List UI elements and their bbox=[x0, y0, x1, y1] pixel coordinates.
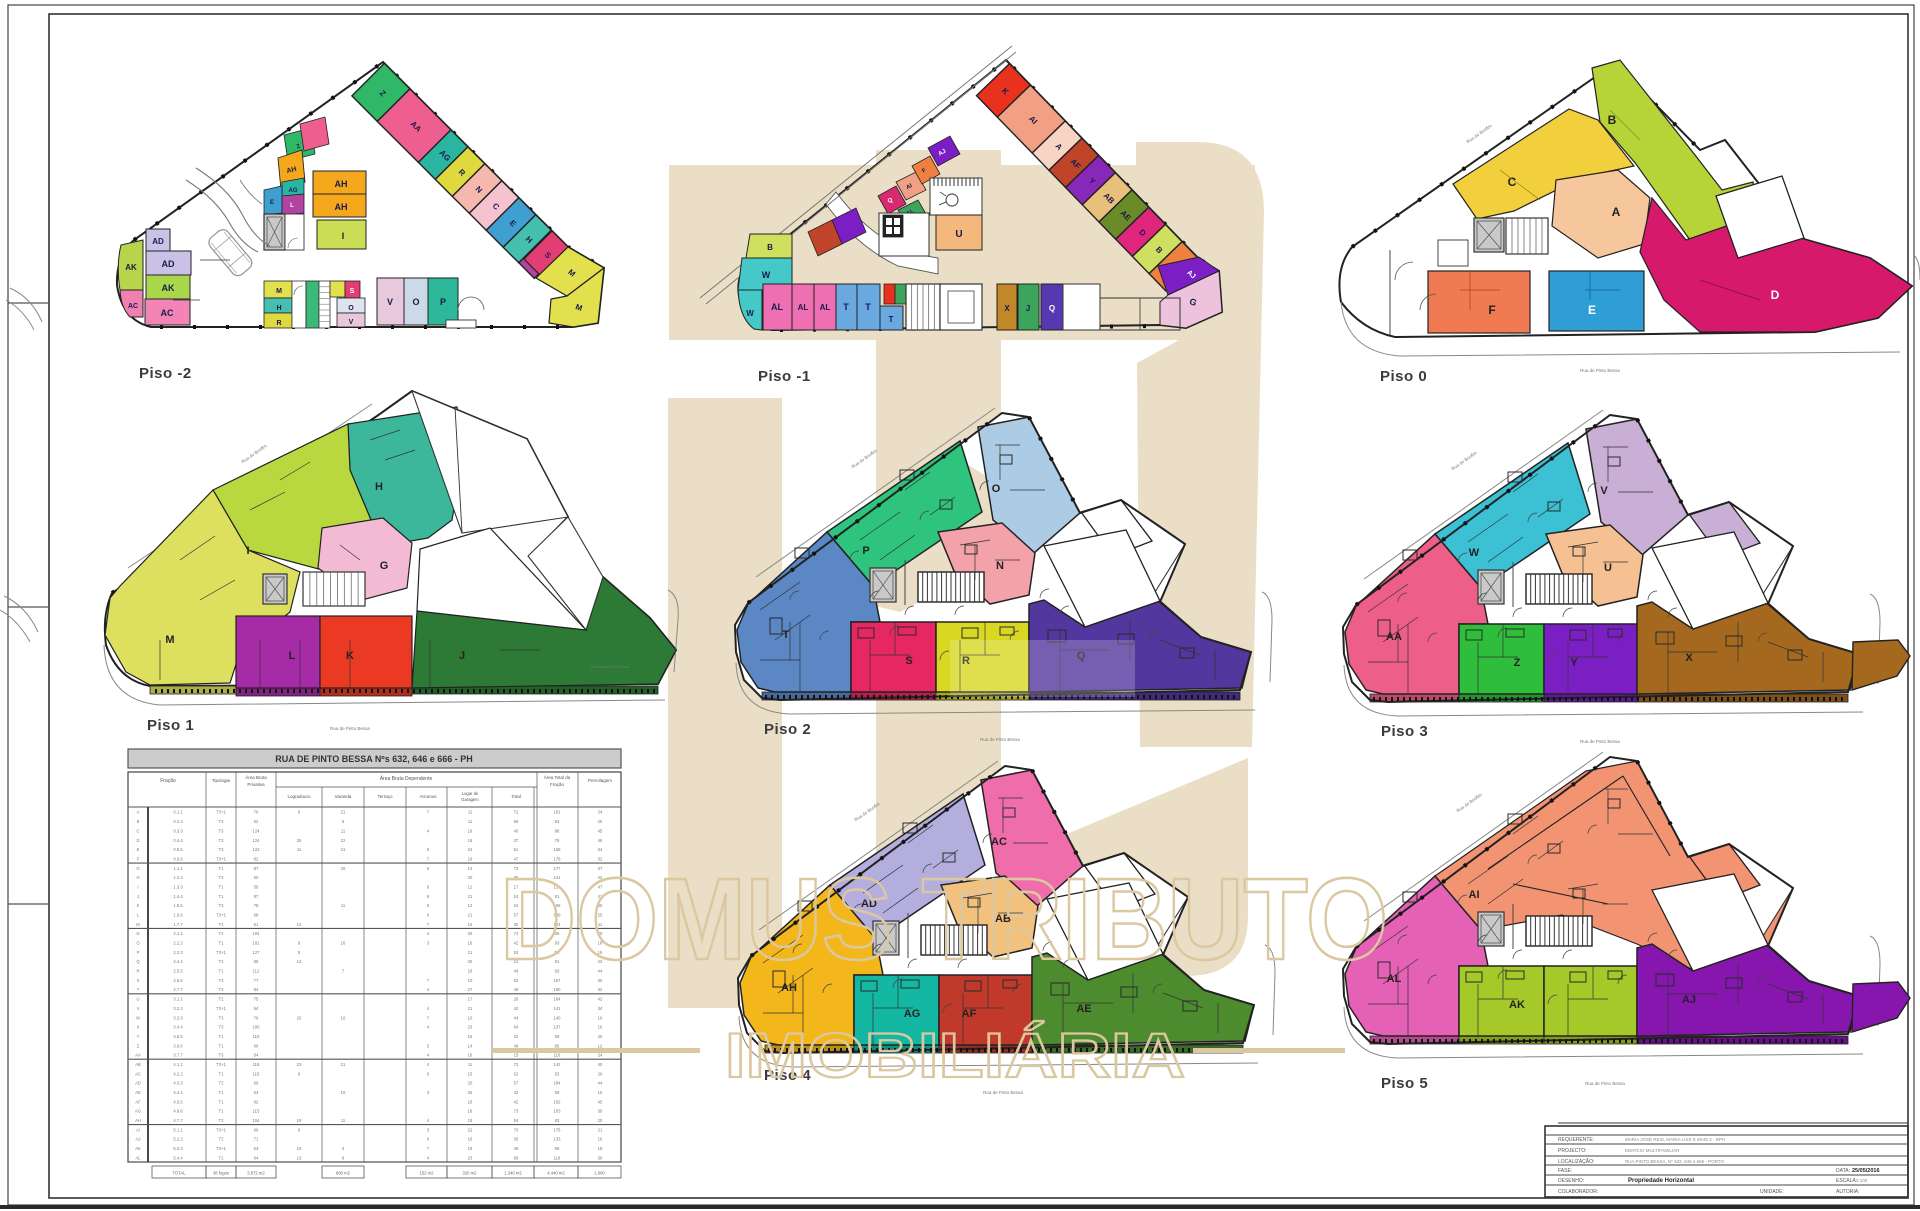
svg-text:AC: AC bbox=[161, 308, 174, 318]
svg-text:16: 16 bbox=[598, 1015, 603, 1020]
svg-text:AH: AH bbox=[135, 1118, 141, 1123]
svg-text:Varanda: Varanda bbox=[335, 794, 352, 799]
svg-text:69: 69 bbox=[254, 1043, 259, 1048]
svg-text:52: 52 bbox=[514, 1071, 519, 1076]
svg-text:16: 16 bbox=[598, 1137, 603, 1142]
svg-text:127: 127 bbox=[253, 950, 261, 955]
svg-text:3.2.2: 3.2.2 bbox=[173, 1006, 183, 1011]
svg-text:X: X bbox=[1685, 652, 1693, 664]
svg-text:20: 20 bbox=[598, 1034, 603, 1039]
svg-text:23: 23 bbox=[297, 1062, 302, 1067]
svg-text:0.3.3: 0.3.3 bbox=[173, 828, 183, 833]
svg-text:T3: T3 bbox=[219, 875, 225, 880]
svg-text:P: P bbox=[137, 950, 140, 955]
svg-text:T1: T1 bbox=[219, 1099, 225, 1104]
svg-text:3.3.3: 3.3.3 bbox=[173, 1015, 183, 1020]
svg-text:AL: AL bbox=[1387, 973, 1402, 985]
svg-text:15: 15 bbox=[468, 1034, 473, 1039]
svg-text:18: 18 bbox=[468, 969, 473, 974]
svg-text:Rua de Pinto Bessa: Rua de Pinto Bessa bbox=[1585, 1081, 1625, 1086]
svg-text:13: 13 bbox=[297, 959, 302, 964]
svg-text:180: 180 bbox=[554, 987, 562, 992]
svg-text:70: 70 bbox=[514, 1127, 519, 1132]
svg-text:AC: AC bbox=[991, 836, 1007, 848]
svg-text:25: 25 bbox=[598, 819, 603, 824]
svg-text:10: 10 bbox=[468, 978, 473, 983]
svg-text:16: 16 bbox=[468, 1053, 473, 1058]
svg-text:P: P bbox=[862, 545, 869, 557]
svg-text:Propriedade Horizontal: Propriedade Horizontal bbox=[1628, 1178, 1694, 1184]
svg-text:44: 44 bbox=[598, 1081, 603, 1086]
svg-text:U: U bbox=[1604, 562, 1612, 574]
svg-text:AK: AK bbox=[1509, 999, 1525, 1011]
svg-text:115: 115 bbox=[253, 1062, 260, 1067]
svg-text:78: 78 bbox=[254, 903, 259, 908]
svg-text:2.6.6: 2.6.6 bbox=[173, 978, 183, 983]
svg-text:87: 87 bbox=[254, 894, 259, 899]
svg-text:2.2.2: 2.2.2 bbox=[173, 941, 183, 946]
svg-text:36: 36 bbox=[514, 1137, 519, 1142]
svg-text:68: 68 bbox=[254, 913, 259, 918]
svg-text:L: L bbox=[290, 203, 294, 209]
svg-text:0.5.5: 0.5.5 bbox=[173, 847, 183, 852]
svg-text:20: 20 bbox=[598, 1071, 603, 1076]
svg-text:34: 34 bbox=[598, 847, 603, 852]
svg-text:T3: T3 bbox=[219, 838, 225, 843]
svg-text:20: 20 bbox=[297, 1015, 302, 1020]
svg-text:AH: AH bbox=[335, 202, 348, 212]
svg-text:39: 39 bbox=[598, 1109, 603, 1114]
svg-text:M: M bbox=[165, 634, 174, 646]
svg-text:T2: T2 bbox=[219, 1081, 225, 1086]
svg-text:184: 184 bbox=[554, 1081, 562, 1086]
svg-text:83: 83 bbox=[555, 1118, 560, 1123]
svg-text:1.6.6: 1.6.6 bbox=[173, 913, 183, 918]
svg-text:11: 11 bbox=[297, 847, 302, 852]
svg-text:26: 26 bbox=[514, 997, 519, 1002]
svg-text:T3+1: T3+1 bbox=[216, 810, 226, 815]
svg-text:T2: T2 bbox=[219, 997, 225, 1002]
svg-text:72: 72 bbox=[514, 810, 519, 815]
svg-text:0.6.6: 0.6.6 bbox=[173, 856, 183, 861]
svg-text:10: 10 bbox=[341, 1015, 346, 1020]
svg-text:T2: T2 bbox=[219, 922, 225, 927]
svg-text:22: 22 bbox=[468, 1127, 473, 1132]
svg-text:26: 26 bbox=[297, 838, 302, 843]
svg-text:Piso 3: Piso 3 bbox=[1381, 723, 1428, 740]
svg-text:21: 21 bbox=[598, 1127, 603, 1132]
svg-text:AJ: AJ bbox=[136, 1137, 141, 1142]
svg-text:Piso -2: Piso -2 bbox=[139, 365, 192, 382]
svg-text:2.3.3: 2.3.3 bbox=[173, 950, 183, 955]
svg-text:46: 46 bbox=[598, 838, 603, 843]
svg-text:T2: T2 bbox=[219, 1118, 225, 1123]
svg-text:T3: T3 bbox=[219, 847, 225, 852]
svg-text:AI: AI bbox=[1469, 889, 1480, 901]
svg-text:20: 20 bbox=[468, 875, 473, 880]
svg-text:0.1.1: 0.1.1 bbox=[173, 810, 183, 815]
svg-text:72: 72 bbox=[514, 1062, 519, 1067]
svg-text:73: 73 bbox=[514, 1109, 519, 1114]
svg-text:5.2.2: 5.2.2 bbox=[173, 1137, 183, 1142]
svg-text:T1: T1 bbox=[219, 1043, 225, 1048]
svg-text:T1: T1 bbox=[219, 1109, 225, 1114]
svg-text:3.1.1: 3.1.1 bbox=[173, 997, 183, 1002]
svg-text:I: I bbox=[342, 231, 345, 241]
svg-text:79: 79 bbox=[254, 1015, 259, 1020]
svg-text:T3+1: T3+1 bbox=[216, 1127, 226, 1132]
svg-text:M: M bbox=[136, 922, 140, 927]
svg-text:124: 124 bbox=[253, 838, 261, 843]
svg-text:19: 19 bbox=[468, 1146, 473, 1151]
svg-text:14: 14 bbox=[468, 1043, 473, 1048]
svg-text:Piso 2: Piso 2 bbox=[764, 721, 811, 738]
svg-text:104: 104 bbox=[253, 1118, 261, 1123]
svg-text:T2: T2 bbox=[219, 1155, 225, 1160]
svg-text:42: 42 bbox=[514, 1006, 519, 1011]
svg-text:11: 11 bbox=[468, 810, 473, 815]
svg-text:4.4.4: 4.4.4 bbox=[173, 1090, 183, 1095]
svg-text:ESCALA:: ESCALA: bbox=[1836, 1178, 1857, 1184]
svg-text:PROJECTO:: PROJECTO: bbox=[1558, 1148, 1587, 1154]
svg-text:23: 23 bbox=[468, 1155, 473, 1160]
svg-text:64: 64 bbox=[254, 1053, 259, 1058]
svg-text:168: 168 bbox=[554, 847, 562, 852]
svg-text:EDIFÍCIO MULTIFAMILIAR: EDIFÍCIO MULTIFAMILIAR bbox=[1625, 1147, 1680, 1153]
svg-text:Rua de Pinto Bessa: Rua de Pinto Bessa bbox=[1580, 739, 1620, 744]
svg-text:Permilagem: Permilagem bbox=[588, 778, 612, 783]
svg-text:COLABORADOR:: COLABORADOR: bbox=[1558, 1189, 1598, 1195]
svg-text:S: S bbox=[137, 978, 140, 983]
svg-text:R: R bbox=[136, 969, 139, 974]
svg-text:IMOBILIÁRIA: IMOBILIÁRIA bbox=[725, 1021, 1185, 1091]
svg-text:59: 59 bbox=[254, 885, 259, 890]
svg-text:60: 60 bbox=[254, 875, 259, 880]
svg-text:B: B bbox=[137, 819, 140, 824]
svg-text:3.6.6: 3.6.6 bbox=[173, 1043, 183, 1048]
svg-text:5.4.4: 5.4.4 bbox=[173, 1155, 183, 1160]
svg-text:71: 71 bbox=[254, 1137, 259, 1142]
svg-text:T3: T3 bbox=[219, 903, 225, 908]
svg-text:92: 92 bbox=[254, 1099, 259, 1104]
svg-text:Rua de Pinto Bessa: Rua de Pinto Bessa bbox=[330, 726, 370, 731]
svg-text:T: T bbox=[783, 629, 790, 641]
svg-text:104: 104 bbox=[253, 931, 261, 936]
svg-text:116: 116 bbox=[554, 1053, 561, 1058]
svg-text:F: F bbox=[137, 856, 140, 861]
svg-text:880 m2: 880 m2 bbox=[336, 1171, 351, 1176]
svg-text:112: 112 bbox=[253, 969, 260, 974]
svg-text:I: I bbox=[246, 545, 249, 557]
svg-text:T1: T1 bbox=[219, 894, 225, 899]
svg-text:182: 182 bbox=[554, 1099, 562, 1104]
svg-text:T1: T1 bbox=[219, 885, 225, 890]
svg-text:21: 21 bbox=[468, 913, 473, 918]
svg-text:59: 59 bbox=[555, 1034, 560, 1039]
svg-text:1.4.4: 1.4.4 bbox=[173, 894, 183, 899]
svg-text:K: K bbox=[137, 903, 140, 908]
svg-text:4.3.3: 4.3.3 bbox=[173, 1081, 183, 1086]
svg-text:Travessa de Pinto Bessa: Travessa de Pinto Bessa bbox=[591, 665, 630, 669]
svg-text:Fração: Fração bbox=[160, 778, 176, 784]
svg-text:115: 115 bbox=[253, 1109, 260, 1114]
svg-text:T3: T3 bbox=[219, 1053, 225, 1058]
svg-text:21: 21 bbox=[341, 810, 346, 815]
svg-text:Terraço: Terraço bbox=[377, 794, 393, 799]
svg-text:G: G bbox=[136, 866, 139, 871]
svg-text:21: 21 bbox=[468, 1006, 473, 1011]
svg-text:Q: Q bbox=[1049, 304, 1055, 313]
svg-text:LOCALIZAÇÃO:: LOCALIZAÇÃO: bbox=[1558, 1158, 1594, 1165]
svg-text:22: 22 bbox=[514, 1034, 519, 1039]
svg-text:10: 10 bbox=[468, 1015, 473, 1020]
svg-text:16: 16 bbox=[468, 838, 473, 843]
svg-text:U: U bbox=[955, 229, 962, 240]
svg-text:99: 99 bbox=[254, 959, 259, 964]
svg-text:H: H bbox=[375, 481, 383, 493]
svg-text:T2: T2 bbox=[219, 959, 225, 964]
svg-text:16: 16 bbox=[468, 941, 473, 946]
svg-text:34: 34 bbox=[598, 1006, 603, 1011]
svg-text:24: 24 bbox=[598, 1053, 603, 1058]
svg-text:5.3.3: 5.3.3 bbox=[173, 1146, 183, 1151]
svg-text:2.5.5: 2.5.5 bbox=[173, 969, 183, 974]
svg-text:UNIDADE:: UNIDADE: bbox=[1760, 1189, 1784, 1195]
svg-text:21: 21 bbox=[468, 950, 473, 955]
svg-text:19: 19 bbox=[297, 1146, 302, 1151]
svg-text:11: 11 bbox=[468, 1062, 473, 1067]
svg-text:Piso 5: Piso 5 bbox=[1381, 1075, 1428, 1092]
svg-text:Y: Y bbox=[1570, 657, 1578, 669]
svg-text:M: M bbox=[276, 288, 282, 295]
svg-text:AI: AI bbox=[136, 1127, 140, 1132]
svg-text:AD: AD bbox=[162, 259, 175, 269]
svg-text:S: S bbox=[350, 288, 355, 295]
svg-text:85: 85 bbox=[555, 1043, 560, 1048]
svg-text:RUA PINTO BESSA, Nº 632, 646 e: RUA PINTO BESSA, Nº 632, 646 e 666 - POR… bbox=[1625, 1159, 1724, 1164]
svg-text:38 fogos: 38 fogos bbox=[213, 1171, 229, 1176]
svg-text:X: X bbox=[137, 1025, 140, 1030]
svg-text:AF: AF bbox=[135, 1099, 141, 1104]
svg-text:32: 32 bbox=[598, 987, 603, 992]
svg-text:18: 18 bbox=[468, 1109, 473, 1114]
svg-text:115: 115 bbox=[253, 1071, 260, 1076]
svg-text:3.4.4: 3.4.4 bbox=[173, 1025, 183, 1030]
svg-text:42: 42 bbox=[514, 1090, 519, 1095]
svg-text:D: D bbox=[136, 838, 139, 843]
svg-text:Z: Z bbox=[1514, 657, 1521, 669]
svg-text:T: T bbox=[889, 315, 894, 324]
svg-text:Arrumos: Arrumos bbox=[419, 794, 437, 799]
svg-text:320 m2: 320 m2 bbox=[463, 1171, 478, 1176]
svg-text:T3: T3 bbox=[219, 828, 225, 833]
svg-text:123: 123 bbox=[253, 847, 261, 852]
svg-text:Piso -1: Piso -1 bbox=[758, 368, 811, 385]
svg-text:54: 54 bbox=[254, 1006, 259, 1011]
svg-text:4.2.2: 4.2.2 bbox=[173, 1071, 183, 1076]
svg-text:Privativa: Privativa bbox=[247, 782, 265, 787]
svg-text:84: 84 bbox=[254, 987, 259, 992]
svg-text:Logradouro: Logradouro bbox=[287, 794, 311, 799]
svg-text:DOMUS TRIBUTO: DOMUS TRIBUTO bbox=[500, 854, 1388, 984]
svg-text:100: 100 bbox=[253, 1025, 261, 1030]
svg-text:184: 184 bbox=[554, 997, 562, 1002]
svg-text:T3: T3 bbox=[219, 978, 225, 983]
svg-text:66: 66 bbox=[514, 819, 519, 824]
svg-text:181: 181 bbox=[554, 810, 562, 815]
svg-text:DESENHO:: DESENHO: bbox=[1558, 1178, 1584, 1184]
svg-text:V: V bbox=[137, 1006, 140, 1011]
svg-text:4.1.1: 4.1.1 bbox=[173, 1062, 183, 1067]
svg-text:26: 26 bbox=[468, 1090, 473, 1095]
svg-text:TOTAL: TOTAL bbox=[172, 1171, 186, 1176]
svg-text:1.5.5: 1.5.5 bbox=[173, 903, 183, 908]
svg-text:A: A bbox=[1612, 205, 1621, 219]
svg-text:AL: AL bbox=[135, 1155, 141, 1160]
svg-text:AD: AD bbox=[135, 1081, 141, 1086]
svg-text:110: 110 bbox=[253, 1034, 260, 1039]
svg-text:AJ: AJ bbox=[1682, 994, 1696, 1006]
svg-text:53: 53 bbox=[555, 1071, 560, 1076]
svg-text:REQUERENTE:: REQUERENTE: bbox=[1558, 1137, 1594, 1143]
svg-text:25: 25 bbox=[468, 959, 473, 964]
svg-text:2.1.1: 2.1.1 bbox=[173, 931, 183, 936]
svg-text:57: 57 bbox=[514, 1081, 519, 1086]
svg-text:68: 68 bbox=[514, 1155, 519, 1160]
svg-text:12: 12 bbox=[468, 903, 473, 908]
svg-text:12: 12 bbox=[468, 885, 473, 890]
svg-text:42: 42 bbox=[598, 997, 603, 1002]
svg-text:O: O bbox=[348, 305, 354, 312]
svg-text:4.7.7: 4.7.7 bbox=[173, 1118, 183, 1123]
svg-text:152 m2: 152 m2 bbox=[420, 1171, 435, 1176]
svg-text:82: 82 bbox=[254, 856, 259, 861]
svg-text:20: 20 bbox=[468, 1081, 473, 1086]
svg-text:26: 26 bbox=[468, 931, 473, 936]
svg-text:V: V bbox=[1600, 485, 1608, 497]
svg-text:T3+1: T3+1 bbox=[216, 1062, 226, 1067]
svg-text:44: 44 bbox=[514, 1015, 519, 1020]
svg-text:U: U bbox=[136, 997, 139, 1002]
svg-text:0.4.4: 0.4.4 bbox=[173, 838, 183, 843]
svg-text:25/05/2016: 25/05/2016 bbox=[1852, 1168, 1880, 1174]
svg-text:T3: T3 bbox=[219, 1015, 225, 1020]
svg-text:11: 11 bbox=[468, 819, 473, 824]
svg-text:AE: AE bbox=[135, 1090, 141, 1095]
svg-text:11: 11 bbox=[341, 903, 346, 908]
svg-text:H: H bbox=[136, 875, 139, 880]
svg-text:12: 12 bbox=[297, 922, 302, 927]
svg-text:AC: AC bbox=[128, 303, 138, 310]
svg-text:83: 83 bbox=[555, 819, 560, 824]
svg-text:10: 10 bbox=[341, 1090, 346, 1095]
svg-text:J: J bbox=[459, 650, 465, 662]
svg-text:137: 137 bbox=[554, 1025, 562, 1030]
svg-text:59: 59 bbox=[555, 1090, 560, 1095]
svg-text:19: 19 bbox=[297, 1118, 302, 1123]
svg-text:62: 62 bbox=[254, 819, 259, 824]
svg-text:42: 42 bbox=[514, 1099, 519, 1104]
svg-text:AK: AK bbox=[125, 263, 137, 272]
svg-text:T3: T3 bbox=[219, 1025, 225, 1030]
svg-text:15: 15 bbox=[598, 1090, 603, 1095]
svg-text:T2: T2 bbox=[219, 931, 225, 936]
svg-text:0.2.2: 0.2.2 bbox=[173, 819, 183, 824]
svg-text:T1: T1 bbox=[219, 1090, 225, 1095]
svg-text:45: 45 bbox=[598, 1099, 603, 1104]
svg-text:40: 40 bbox=[514, 828, 519, 833]
svg-text:75: 75 bbox=[254, 997, 259, 1002]
svg-text:RUA DE PINTO BESSA Nºs 632, 64: RUA DE PINTO BESSA Nºs 632, 646 e 666 - … bbox=[275, 754, 473, 764]
svg-text:3.5.5: 3.5.5 bbox=[173, 1034, 183, 1039]
svg-text:Tipologia: Tipologia bbox=[212, 778, 231, 783]
svg-text:A: A bbox=[137, 810, 140, 815]
svg-text:T1: T1 bbox=[219, 1034, 225, 1039]
svg-text:18: 18 bbox=[468, 1099, 473, 1104]
svg-text:Área Total da: Área Total da bbox=[544, 774, 571, 780]
svg-text:2.7.7: 2.7.7 bbox=[173, 987, 183, 992]
svg-text:E: E bbox=[270, 200, 274, 206]
svg-text:4.5.5: 4.5.5 bbox=[173, 1099, 183, 1104]
svg-text:O: O bbox=[992, 483, 1001, 495]
svg-text:1.000: 1.000 bbox=[594, 1171, 605, 1176]
svg-text:AE: AE bbox=[1076, 1003, 1091, 1015]
svg-text:T1: T1 bbox=[219, 866, 225, 871]
svg-text:3.7.7: 3.7.7 bbox=[173, 1053, 183, 1058]
svg-text:76: 76 bbox=[555, 838, 560, 843]
svg-text:E: E bbox=[1588, 303, 1596, 317]
svg-text:40: 40 bbox=[598, 1062, 603, 1067]
svg-text:1.3.3: 1.3.3 bbox=[173, 885, 183, 890]
svg-text:D: D bbox=[1771, 288, 1780, 302]
svg-text:4.440 m2: 4.440 m2 bbox=[547, 1171, 565, 1176]
svg-text:Total: Total bbox=[511, 794, 521, 799]
svg-text:11: 11 bbox=[341, 828, 346, 833]
svg-text:1.7.7: 1.7.7 bbox=[173, 922, 183, 927]
svg-text:15: 15 bbox=[468, 922, 473, 927]
svg-text:11: 11 bbox=[341, 1118, 346, 1123]
svg-text:19: 19 bbox=[468, 856, 473, 861]
svg-text:88: 88 bbox=[555, 828, 560, 833]
svg-text:AD: AD bbox=[152, 237, 164, 246]
svg-text:20: 20 bbox=[341, 866, 346, 871]
svg-text:T1: T1 bbox=[219, 941, 225, 946]
svg-text:AF: AF bbox=[962, 1008, 977, 1020]
svg-text:22: 22 bbox=[341, 838, 346, 843]
svg-text:W: W bbox=[762, 270, 771, 280]
svg-text:36: 36 bbox=[598, 1155, 603, 1160]
svg-text:142: 142 bbox=[554, 1062, 562, 1067]
svg-text:B: B bbox=[767, 243, 773, 252]
svg-text:AG: AG bbox=[289, 188, 298, 194]
svg-text:T3+1: T3+1 bbox=[216, 950, 226, 955]
svg-text:1.340 m2: 1.340 m2 bbox=[504, 1171, 522, 1176]
svg-text:133: 133 bbox=[554, 1137, 562, 1142]
svg-text:48: 48 bbox=[514, 987, 519, 992]
svg-text:Z: Z bbox=[137, 1043, 140, 1048]
svg-text:45: 45 bbox=[598, 828, 603, 833]
svg-text:E: E bbox=[137, 847, 140, 852]
svg-text:Y: Y bbox=[137, 1034, 140, 1039]
svg-text:V: V bbox=[387, 297, 393, 307]
svg-text:141: 141 bbox=[554, 1006, 562, 1011]
svg-text:46: 46 bbox=[514, 1146, 519, 1151]
svg-text:1.2.2: 1.2.2 bbox=[173, 875, 183, 880]
svg-text:16: 16 bbox=[341, 941, 346, 946]
svg-text:T3+1: T3+1 bbox=[216, 856, 226, 861]
svg-text:AL: AL bbox=[798, 303, 809, 312]
svg-text:C: C bbox=[136, 828, 139, 833]
